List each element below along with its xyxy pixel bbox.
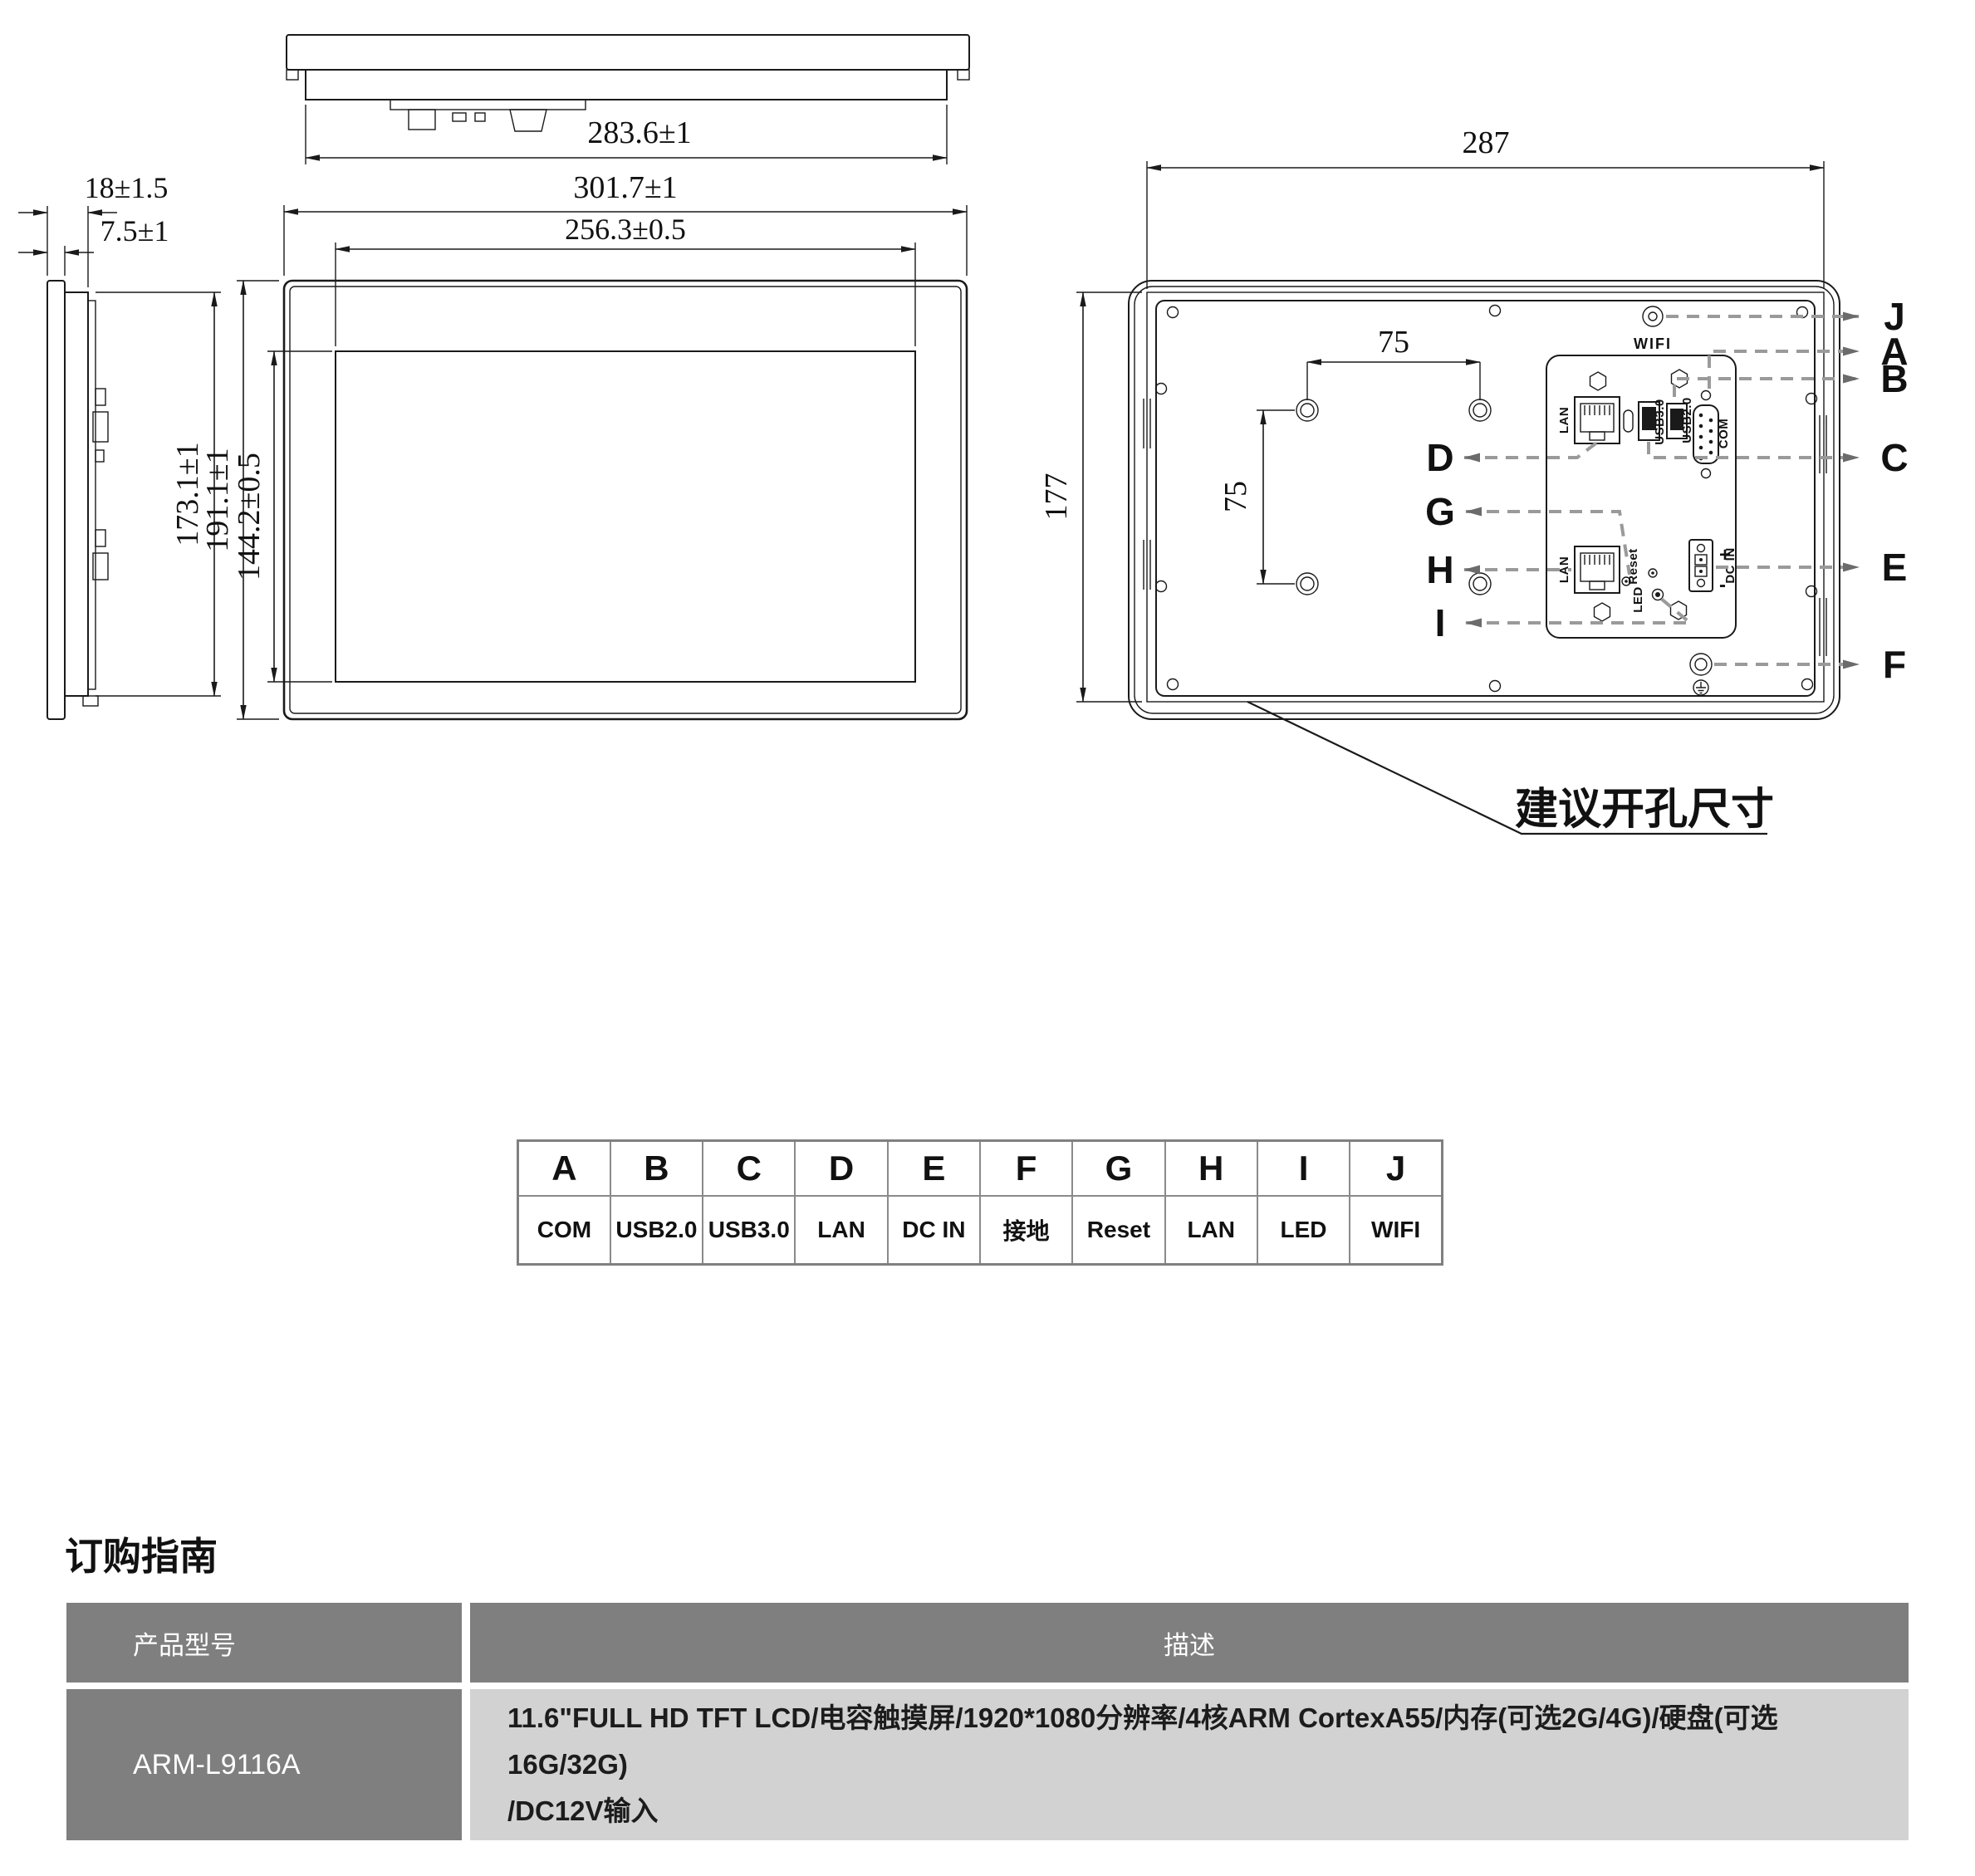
back-view: 75 75 287 177 WIFI [1039, 125, 1909, 834]
callout-C: C [1880, 436, 1908, 479]
dim-vesa-75v: 75 [1218, 410, 1295, 584]
top-view-right-tab [958, 70, 969, 80]
dim-active-width: 256.3±0.5 [565, 213, 686, 246]
dim-cutout-width: 287 [1463, 125, 1510, 160]
port-value-J: WIFI [1350, 1196, 1442, 1265]
port-letter-I: I [1257, 1141, 1350, 1197]
earth-icon [1693, 680, 1708, 695]
vesa-holes [1296, 399, 1491, 595]
dim-depth: 18±1.5 [85, 171, 169, 204]
dim-top-width: 283.6±1 [587, 115, 691, 150]
usbc-port [1624, 410, 1633, 432]
lan-port-top: LAN [1557, 397, 1620, 443]
dim-bezel-depth: 7.5±1 [100, 214, 169, 247]
callout-D: D [1426, 436, 1453, 479]
top-view-bezel [287, 35, 969, 70]
dim-vesa-vertical: 75 [1218, 481, 1253, 512]
wifi-label: WIFI [1634, 336, 1672, 352]
port-value-G: Reset [1072, 1196, 1164, 1265]
side-view-backplate [88, 301, 96, 689]
port-value-B: USB2.0 [610, 1196, 703, 1265]
order-guide-heading: 订购指南 [65, 1526, 218, 1581]
callout-leaders [1464, 316, 1859, 664]
top-view: 283.6±1 [287, 35, 969, 164]
dim-256: 256.3±0.5 [336, 213, 915, 346]
led-indicator: LED [1631, 586, 1664, 613]
desc-line-1: 11.6"FULL HD TFT LCD/电容触摸屏/1920*1080分辨率/… [507, 1695, 1884, 1788]
dim-177: 177 [1039, 292, 1142, 702]
port-value-C: USB3.0 [703, 1196, 795, 1265]
back-view-panel [1156, 301, 1815, 696]
chassis-screw-holes [1156, 306, 1817, 692]
dim-vesa-75h: 75 [1307, 325, 1480, 400]
usb2-label: USB2.0 [1680, 397, 1694, 443]
port-letter-A: A [518, 1141, 610, 1197]
port-letter-F: F [980, 1141, 1072, 1197]
dim-outer-width: 301.7±1 [573, 170, 677, 205]
port-letter-C: C [703, 1141, 795, 1197]
side-view-bezel [47, 281, 65, 719]
port-value-A: COM [518, 1196, 610, 1265]
dim-cutout-height: 177 [1039, 473, 1074, 521]
top-view-left-tab [287, 70, 298, 80]
cutout-note-text: 建议开孔尺寸 [1515, 786, 1774, 834]
port-letter-H: H [1165, 1141, 1257, 1197]
port-value-E: DC IN [888, 1196, 980, 1265]
port-letter-G: G [1072, 1141, 1164, 1197]
dim-144: 144.2±0.5 [232, 351, 332, 682]
desc-line-2: /DC12V输入 [507, 1788, 1884, 1834]
order-table-header-desc: 描述 [470, 1603, 1909, 1683]
callout-F: F [1883, 643, 1906, 686]
com-label: COM [1717, 419, 1731, 449]
ground-terminal [1690, 654, 1712, 695]
usb3-port: USB3.0 [1639, 399, 1667, 445]
lan-port-bottom: LAN [1557, 546, 1620, 593]
order-table-desc-cell: 11.6"FULL HD TFT LCD/电容触摸屏/1920*1080分辨率/… [470, 1689, 1909, 1840]
dim-active-height: 144.2±0.5 [232, 453, 267, 580]
lan-top-label: LAN [1557, 407, 1571, 433]
port-letter-B: B [610, 1141, 703, 1197]
order-table-header-model: 产品型号 [66, 1603, 462, 1683]
port-letter-E: E [888, 1141, 980, 1197]
port-letter-D: D [795, 1141, 887, 1197]
port-value-I: LED [1257, 1196, 1350, 1265]
front-view: 301.7±1 256.3±0.5 191.1±1 144.2±0.5 [200, 170, 967, 719]
dim-7-5: 7.5±1 [18, 214, 169, 276]
callout-E: E [1882, 546, 1908, 589]
side-view-connector [96, 389, 105, 405]
callout-H: H [1426, 548, 1453, 591]
port-legend-table: A B C D E F G H I J COM USB2.0 USB3.0 LA… [517, 1139, 1443, 1266]
dim-287: 287 [1147, 125, 1824, 289]
side-view: 18±1.5 7.5±1 173.1±1 [18, 171, 221, 719]
order-table-model-cell: ARM-L9116A [66, 1689, 462, 1840]
technical-drawing: 283.6±1 18±1.5 7.5±1 173.1±1 [0, 0, 1975, 1876]
port-value-F: 接地 [980, 1196, 1072, 1265]
side-view-connector [96, 530, 105, 546]
top-view-connector-bump [475, 113, 485, 121]
dim-outer-height: 191.1±1 [200, 448, 235, 551]
callout-letters: J A B C E F D G H I [1425, 295, 1909, 686]
callout-B: B [1880, 357, 1908, 400]
callout-G: G [1425, 490, 1455, 533]
top-view-connector-bump [409, 110, 435, 130]
cutout-note: 建议开孔尺寸 [1247, 702, 1774, 834]
usb2-port: USB2.0 [1667, 397, 1694, 443]
top-view-body [306, 70, 947, 100]
com-port: COM [1693, 391, 1731, 478]
dim-vesa-horizontal: 75 [1378, 325, 1409, 360]
led-label: LED [1631, 586, 1645, 613]
port-letter-J: J [1350, 1141, 1442, 1197]
connector-panel: LAN USB3.0 USB2.0 [1546, 355, 1737, 638]
side-view-bottom-tab [83, 696, 98, 706]
front-view-active-area [336, 351, 915, 682]
front-view-outer [284, 281, 967, 719]
port-value-D: LAN [795, 1196, 887, 1265]
port-table-value-row: COM USB2.0 USB3.0 LAN DC IN 接地 Reset LAN… [518, 1196, 1443, 1265]
side-view-connector [96, 450, 104, 462]
port-value-H: LAN [1165, 1196, 1257, 1265]
dim-283: 283.6±1 [306, 105, 947, 164]
usb3-label: USB3.0 [1653, 399, 1667, 445]
dc-in-connector: + - DC IN [1689, 540, 1737, 596]
top-view-connector-plate [390, 100, 586, 110]
drawing-page: 283.6±1 18±1.5 7.5±1 173.1±1 [0, 0, 1975, 1876]
top-view-connector-bump [510, 110, 546, 131]
callout-I: I [1435, 601, 1446, 644]
wifi-antenna-connector: WIFI [1634, 306, 1672, 352]
side-view-body [65, 292, 88, 696]
port-table-header-row: A B C D E F G H I J [518, 1141, 1443, 1197]
top-view-connector-bump [453, 113, 466, 121]
